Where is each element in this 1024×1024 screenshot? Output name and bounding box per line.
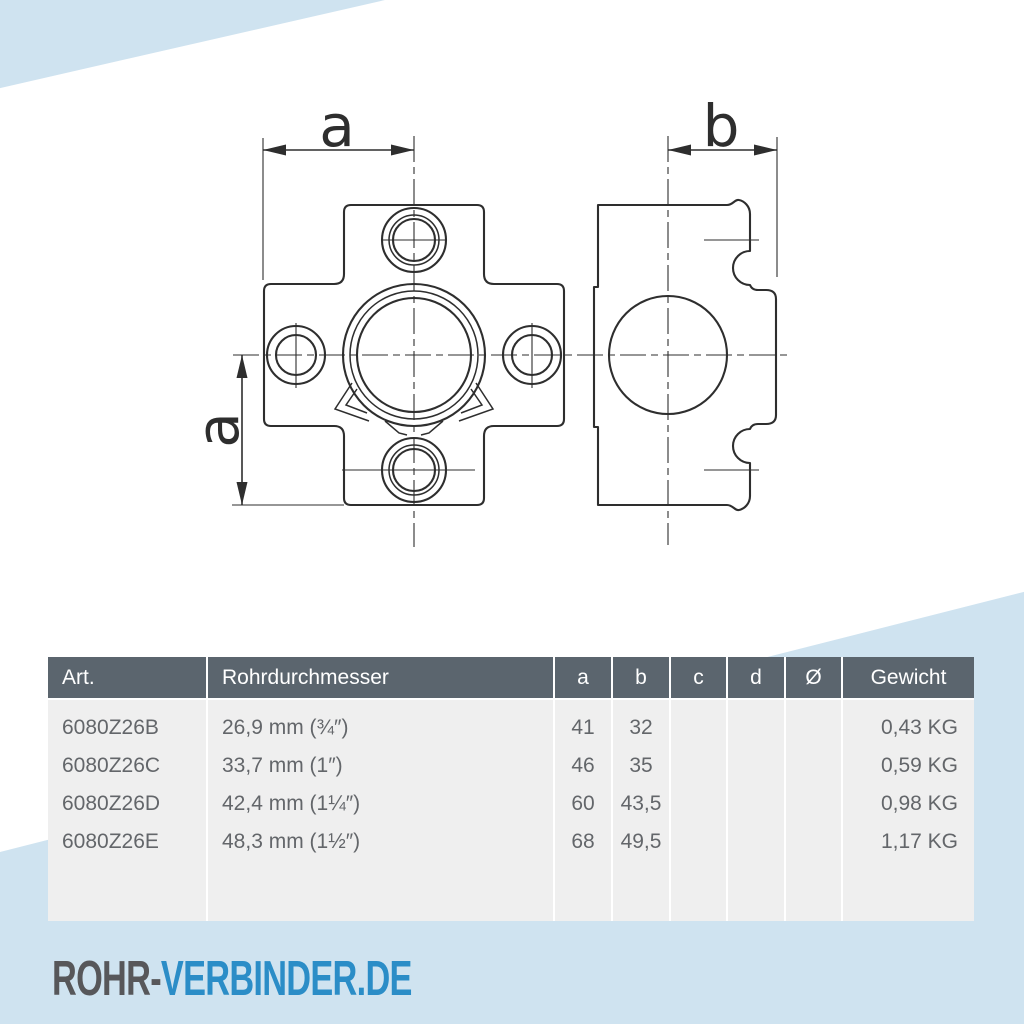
cell-rohrdurchmesser: 42,4 mm (1¼″) <box>208 785 553 823</box>
column-gewicht: 0,43 KG 0,59 KG 0,98 KG 1,17 KG <box>843 700 974 921</box>
header-diameter: Ø <box>786 657 843 698</box>
cell-gewicht: 0,43 KG <box>843 709 974 747</box>
dimension-b-arrow-left <box>668 145 691 156</box>
spec-table: Art. Rohrdurchmesser a b c d Ø Gewicht 6… <box>48 657 974 923</box>
cell-diameter <box>786 709 841 747</box>
cell-d <box>728 709 784 747</box>
logo-text-verbinder: VERBINDER.DE <box>161 952 412 1006</box>
header-a: a <box>555 657 613 698</box>
cell-rohrdurchmesser: 33,7 mm (1″) <box>208 747 553 785</box>
header-b: b <box>613 657 671 698</box>
column-diameter <box>786 700 843 921</box>
front-view <box>264 136 564 547</box>
header-art: Art. <box>48 657 208 698</box>
cell-art: 6080Z26D <box>48 785 206 823</box>
side-view <box>594 136 776 545</box>
dimension-b: b <box>668 92 777 277</box>
logo-text-rohr: ROHR- <box>52 952 161 1006</box>
dimension-b-arrow-right <box>754 145 777 156</box>
dimension-a-left-label: a <box>184 412 252 448</box>
cell-diameter <box>786 747 841 785</box>
cell-b: 35 <box>613 747 669 785</box>
cell-art: 6080Z26C <box>48 747 206 785</box>
header-gewicht: Gewicht <box>843 657 974 698</box>
site-logo: ROHR-VERBINDER.DE <box>52 951 412 1007</box>
dimension-a-top-arrow-right <box>391 145 414 156</box>
dimension-a-top-label: a <box>319 92 355 160</box>
product-spec-page: a a b Art. Rohrdurchmesser a b c d Ø <box>0 0 1024 1024</box>
header-c: c <box>671 657 728 698</box>
column-d <box>728 700 786 921</box>
header-d: d <box>728 657 786 698</box>
cell-a: 46 <box>555 747 611 785</box>
cell-a: 60 <box>555 785 611 823</box>
cell-c <box>671 709 726 747</box>
dimension-b-label: b <box>703 92 740 160</box>
cell-diameter <box>786 785 841 823</box>
cell-d <box>728 823 784 861</box>
spec-table-body: 6080Z26B 6080Z26C 6080Z26D 6080Z26E 26,9… <box>48 700 974 921</box>
cell-c <box>671 785 726 823</box>
column-art: 6080Z26B 6080Z26C 6080Z26D 6080Z26E <box>48 700 208 921</box>
dimension-a-left-arrow-top <box>237 355 248 378</box>
cell-d <box>728 785 784 823</box>
cell-gewicht: 0,98 KG <box>843 785 974 823</box>
cell-b: 49,5 <box>613 823 669 861</box>
cell-diameter <box>786 823 841 861</box>
column-rohrdurchmesser: 26,9 mm (¾″) 33,7 mm (1″) 42,4 mm (1¼″) … <box>208 700 555 921</box>
dimension-a-top-arrow-left <box>263 145 286 156</box>
cell-d <box>728 747 784 785</box>
header-rohrdurchmesser: Rohrdurchmesser <box>208 657 555 698</box>
cell-art: 6080Z26B <box>48 709 206 747</box>
column-b: 32 35 43,5 49,5 <box>613 700 671 921</box>
cell-a: 68 <box>555 823 611 861</box>
cell-rohrdurchmesser: 26,9 mm (¾″) <box>208 709 553 747</box>
cell-c <box>671 747 726 785</box>
cell-c <box>671 823 726 861</box>
cell-b: 43,5 <box>613 785 669 823</box>
cell-gewicht: 1,17 KG <box>843 823 974 861</box>
cell-gewicht: 0,59 KG <box>843 747 974 785</box>
dimension-a-left-arrow-bottom <box>237 482 248 505</box>
cell-art: 6080Z26E <box>48 823 206 861</box>
cell-a: 41 <box>555 709 611 747</box>
cell-b: 32 <box>613 709 669 747</box>
column-a: 41 46 60 68 <box>555 700 613 921</box>
column-c <box>671 700 728 921</box>
cell-rohrdurchmesser: 48,3 mm (1½″) <box>208 823 553 861</box>
spec-table-header: Art. Rohrdurchmesser a b c d Ø Gewicht <box>48 657 974 700</box>
